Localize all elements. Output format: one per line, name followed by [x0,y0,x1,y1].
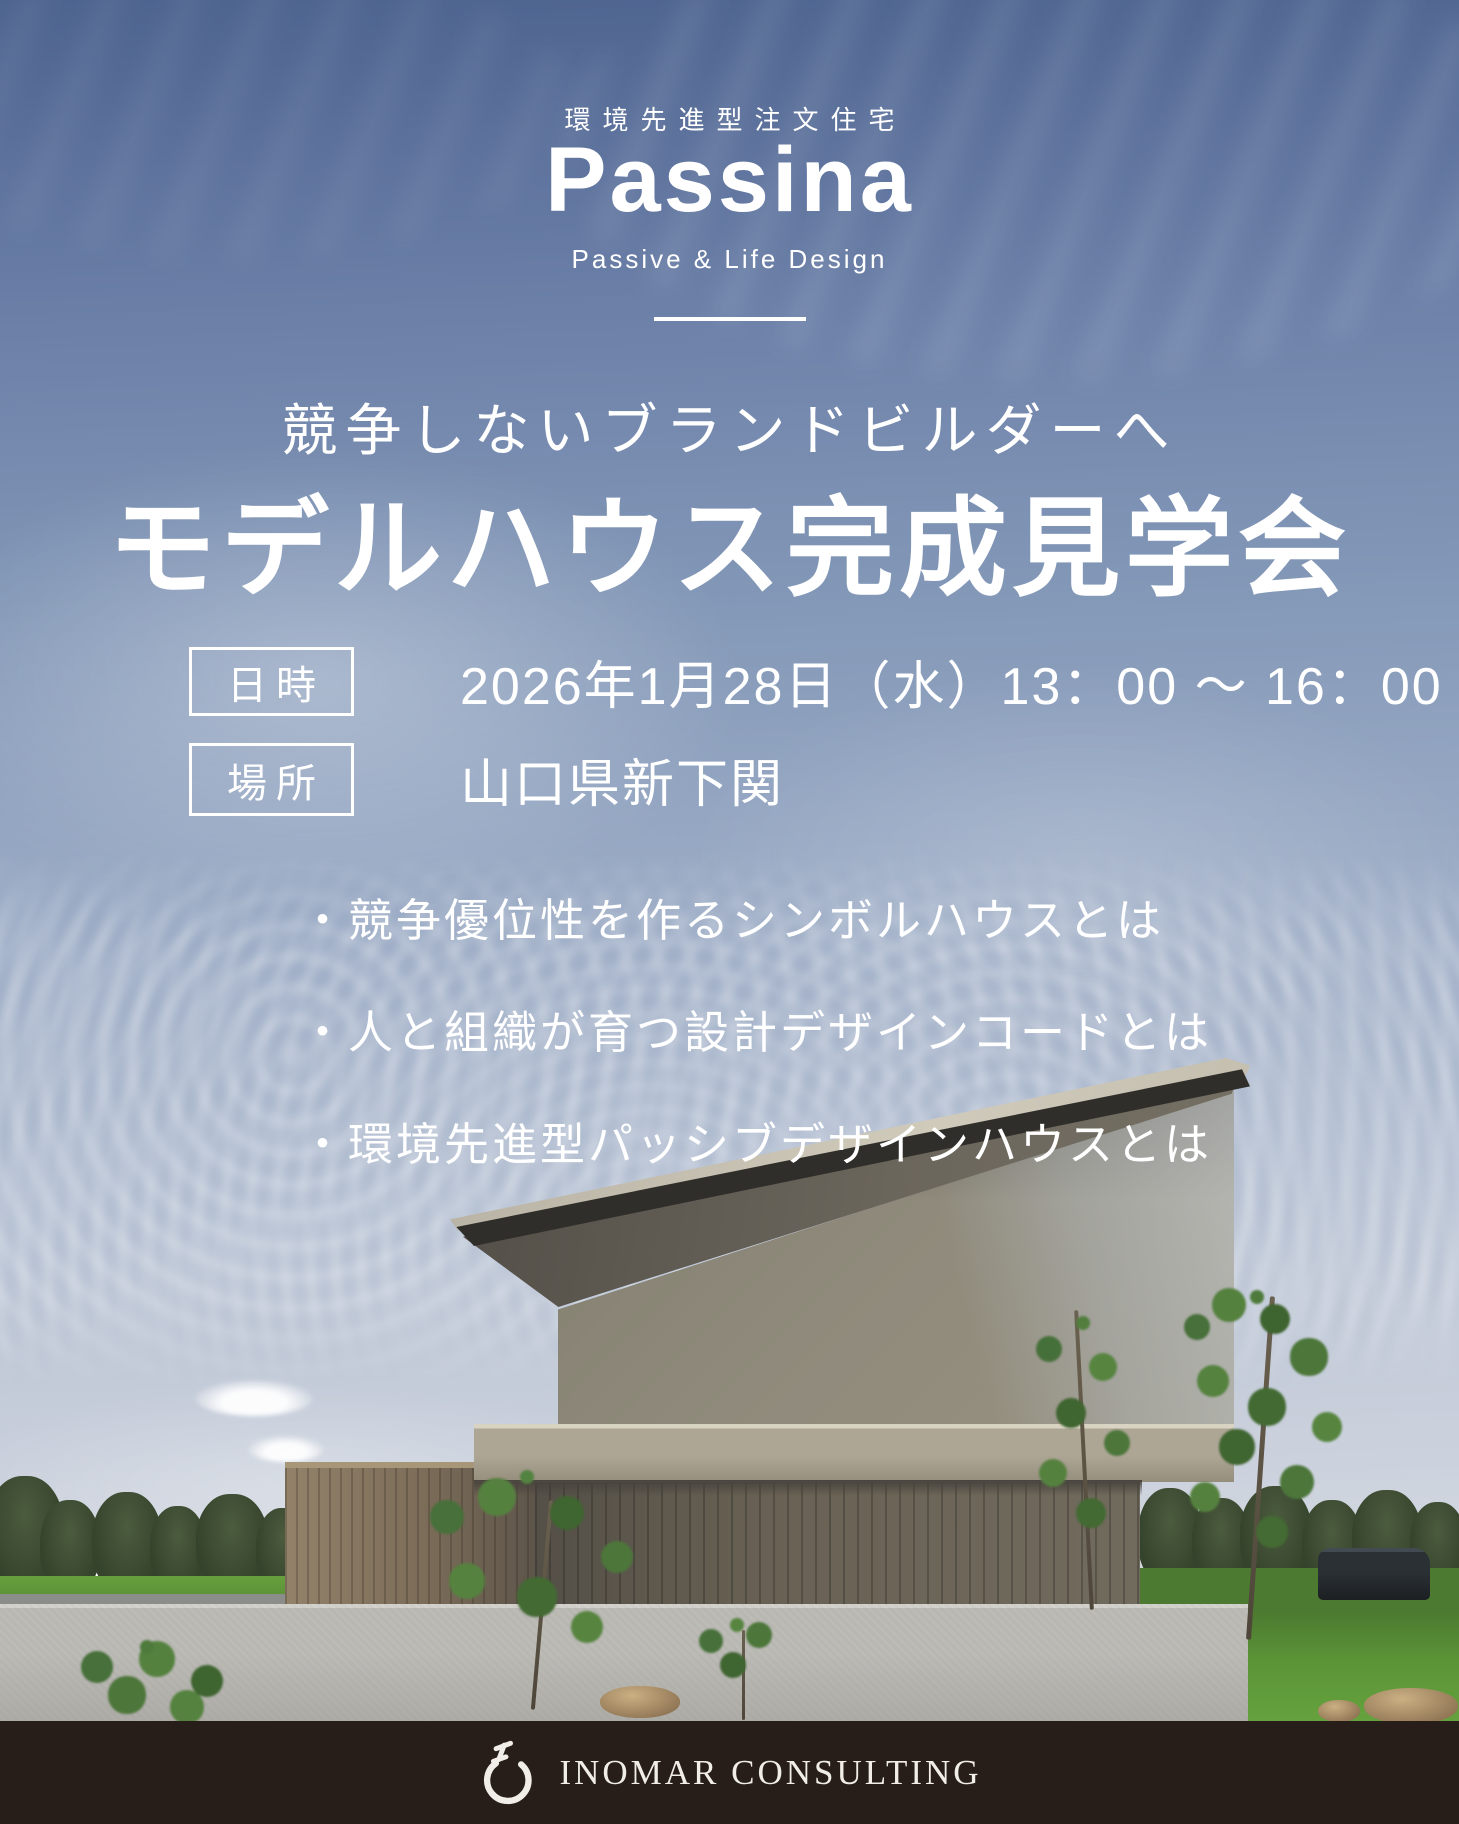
hero-subtitle: 競争しないブランドビルダーへ [0,386,1459,467]
inomar-ring-icon [477,1737,535,1809]
bullet-item: ・人と組織が育つ設計デザインコードとは [300,996,1212,1061]
datetime-label-box: 日時 [189,647,354,716]
brand-logo-subtitle: Passive & Life Design [0,244,1459,275]
event-poster: 環境先進型注文住宅 Passina Passive & Life Design … [0,0,1459,1824]
bullet-item: ・競争優位性を作るシンボルハウスとは [300,884,1164,949]
footer-bar: INOMAR CONSULTING [0,1721,1459,1824]
location-value: 山口県新下関 [460,743,784,816]
footer-company-name: INOMAR CONSULTING [559,1753,981,1793]
poster-content: 環境先進型注文住宅 Passina Passive & Life Design … [0,0,1459,1824]
divider-line [654,317,806,321]
page-title: モデルハウス完成見学会 [0,462,1459,618]
location-label-box: 場所 [189,743,354,816]
datetime-value: 2026年1月28日（水）13：00 ～ 16：00 [460,647,1443,716]
brand-logo: Passina [0,128,1459,233]
bullet-item: ・環境先進型パッシブデザインハウスとは [300,1108,1212,1173]
